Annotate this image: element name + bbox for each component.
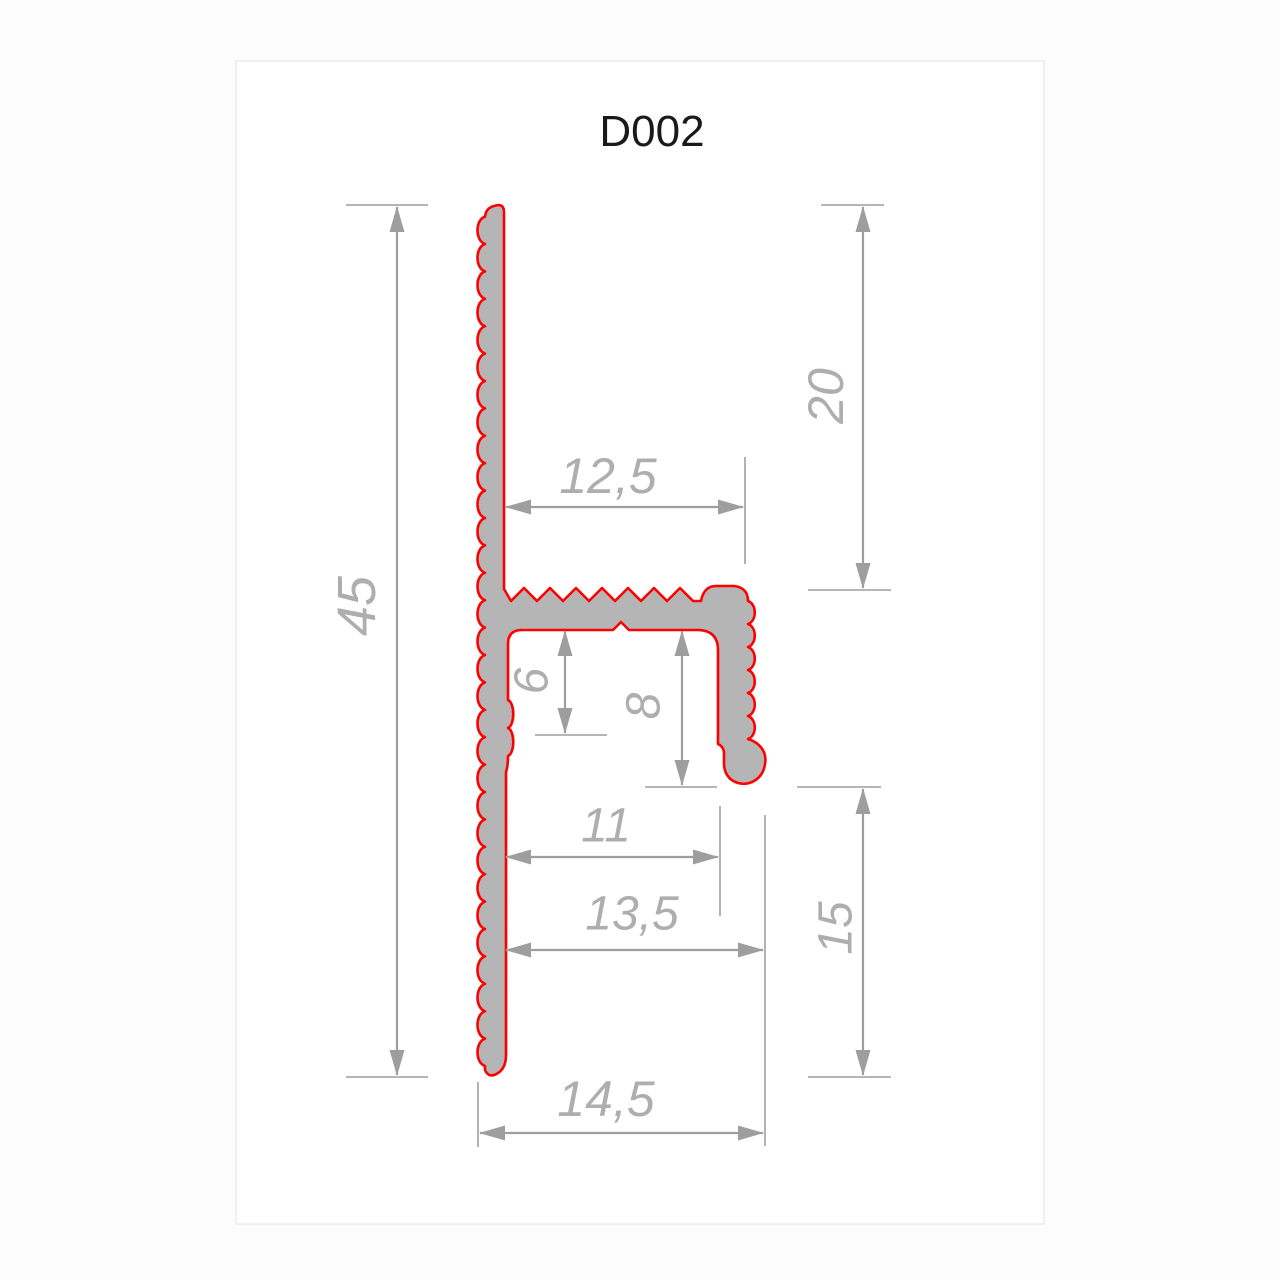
dimension-label-lower-height-15: 15 (810, 901, 863, 955)
dimension-label-inner-width-11: 11 (581, 800, 631, 853)
dimension-label-top-arm-width: 12,5 (559, 448, 657, 504)
dimension-label-pocket-depth-6: 6 (506, 667, 559, 694)
dimension-label-overall-width: 14,5 (557, 1071, 655, 1127)
dimension-label-hook-width-13-5: 13,5 (585, 888, 679, 941)
drawing-svg: D002 452012,5681113,51514,5 (0, 0, 1280, 1280)
drawing-stage: D002 452012,5681113,51514,5 (0, 0, 1280, 1280)
dimension-label-overall-height: 45 (327, 575, 387, 636)
dimension-label-pocket-depth-8: 8 (618, 692, 671, 719)
drawing-title: D002 (599, 107, 704, 156)
sheet (236, 61, 1044, 1224)
dimension-label-upper-flange-height: 20 (798, 368, 854, 425)
